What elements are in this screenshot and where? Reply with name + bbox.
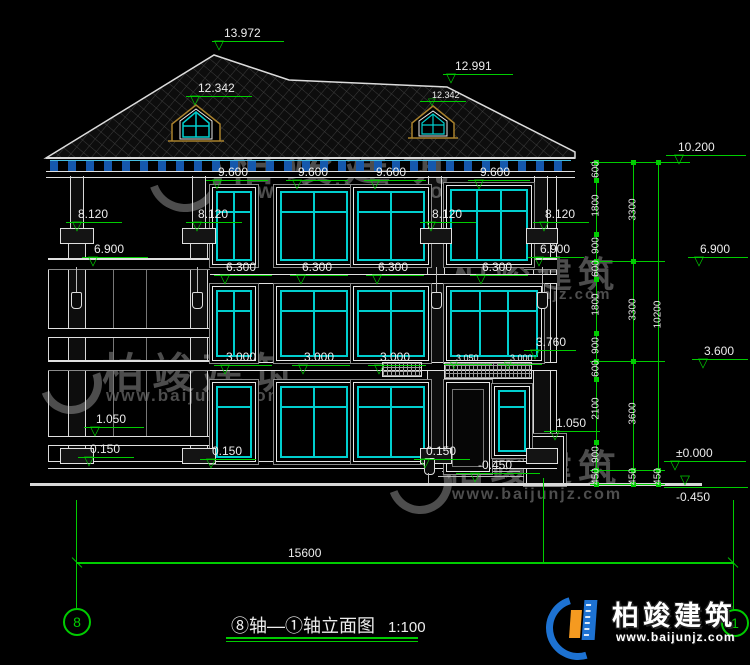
elevation-marker-icon: ▽ <box>192 220 202 231</box>
elevation-marker: -0.450 ▽ <box>456 459 540 474</box>
dimension-label: 450 <box>653 452 664 502</box>
pendant-lamp-icon <box>71 292 82 309</box>
elevation-marker-icon: ▽ <box>446 72 456 83</box>
axis-bubble-left: 8 <box>63 608 91 636</box>
elevation-marker: 0.150 ▽ <box>78 443 134 458</box>
elevation-marker-icon: ▽ <box>450 362 458 370</box>
window <box>353 187 429 265</box>
elevation-label: 12.342 <box>420 90 466 100</box>
window <box>276 382 352 462</box>
elevation-marker-line <box>664 487 748 488</box>
elevation-marker: 6.900 ▽ <box>82 243 148 258</box>
window <box>276 187 352 265</box>
elevation-marker: 9.600 ▽ <box>468 166 530 181</box>
elevation-marker: 3.000 ▽ <box>214 351 272 366</box>
brand-logo: 柏竣建筑 www.baijunjz.com <box>540 586 750 662</box>
dimension-label: 450 <box>628 452 639 502</box>
building-icon <box>569 610 582 638</box>
elevation-marker-icon: ▽ <box>298 363 308 374</box>
elevation-marker: 8.120 ▽ <box>186 208 242 223</box>
elevation-marker: 10.200 ▽ <box>666 141 746 156</box>
elevation-marker-icon: ▽ <box>474 178 484 189</box>
elevation-marker-icon: ▽ <box>190 94 200 105</box>
floor-slab-6900 <box>48 258 210 270</box>
elevation-marker-icon: ▽ <box>420 457 430 468</box>
elevation-marker-icon: ▽ <box>470 471 480 482</box>
dimension-label: 3300 <box>628 185 639 235</box>
dimension-label: 10200 <box>653 290 664 340</box>
elevation-label: -0.450 <box>676 490 710 504</box>
dim-tick <box>631 259 636 264</box>
elevation-marker-icon: ▽ <box>680 472 690 488</box>
elevation-marker: ±0.000 ▽ <box>664 447 746 462</box>
elevation-marker-icon: ▽ <box>694 255 704 266</box>
column <box>190 242 208 448</box>
elevation-marker: 3.000 ▽ <box>292 351 350 366</box>
elevation-marker: 6.900 ▽ <box>688 243 748 258</box>
elevation-marker-icon: ▽ <box>220 273 230 284</box>
elevation-marker-icon: ▽ <box>292 178 302 189</box>
logo-site-url: www.baijunjz.com <box>616 630 736 644</box>
drawing-title-text: ⑧轴—①轴立面图 <box>231 616 375 636</box>
elevation-marker-icon: ▽ <box>426 220 436 231</box>
elevation-marker: 9.600 ▽ <box>286 166 348 181</box>
elevation-marker: 8.120 ▽ <box>66 208 122 223</box>
elevation-marker: 3.000 ▽ <box>368 351 426 366</box>
dimension-label: 15600 <box>288 546 321 560</box>
elevation-label: -0.450 <box>456 459 540 472</box>
building-icon <box>582 600 598 640</box>
elevation-marker-icon: ▽ <box>372 273 382 284</box>
elevation-marker: 9.600 ▽ <box>206 166 268 181</box>
elevation-marker: 0.150 ▽ <box>200 445 256 460</box>
porch-wall-edge <box>146 270 147 436</box>
elevation-marker-icon: ▽ <box>370 178 380 189</box>
elevation-marker-icon: ▽ <box>88 255 98 266</box>
elevation-marker: 6.300 ▽ <box>470 261 528 276</box>
elevation-marker: 12.342 ▽ <box>186 82 252 97</box>
elevation-marker: 12.342 ▽ <box>420 90 466 102</box>
pendant-lamp-icon <box>537 292 548 309</box>
dim-tick <box>631 160 636 165</box>
floor-slab-3600 <box>48 360 210 371</box>
elevation-marker-icon: ▽ <box>84 455 94 466</box>
elevation-marker: 3.760 ▽ <box>524 336 576 351</box>
elevation-marker: 6.900 ▽ <box>528 243 584 258</box>
elevation-marker-icon: ▽ <box>539 220 549 231</box>
drawing-scale: 1:100 <box>380 619 426 636</box>
elevation-marker-icon: ▽ <box>220 363 230 374</box>
elevation-marker: 12.991 ▽ <box>443 60 513 75</box>
elevation-marker-icon: ▽ <box>374 363 384 374</box>
pendant-lamp-icon <box>192 292 203 309</box>
dim-tick <box>631 359 636 364</box>
elevation-marker: 1.050 ▽ <box>544 417 600 432</box>
elevation-marker-icon: ▽ <box>550 429 560 440</box>
eave-fascia <box>46 157 575 159</box>
pendant-lamp-icon <box>431 292 442 309</box>
elevation-marker: 1.050 ▽ <box>84 413 144 428</box>
elevation-marker: 3.050 ▽ <box>444 353 492 365</box>
elevation-marker-icon: ▽ <box>504 362 512 370</box>
lamp-wire <box>542 267 543 292</box>
elevation-marker: 6.300 ▽ <box>366 261 424 276</box>
elevation-marker-icon: ▽ <box>670 459 680 470</box>
elevation-marker-icon: ▽ <box>72 220 82 231</box>
elevation-marker: 0.150 ▽ <box>414 445 470 460</box>
lamp-wire <box>197 267 198 292</box>
window <box>494 386 530 456</box>
elevation-marker: 8.120 ▽ <box>420 208 476 223</box>
elevation-marker: 9.600 ▽ <box>364 166 426 181</box>
elevation-marker: 6.300 ▽ <box>214 261 272 276</box>
elevation-marker-icon: ▽ <box>530 348 540 359</box>
title-underline <box>226 641 418 642</box>
dim-tick <box>656 160 661 165</box>
elevation-marker-icon: ▽ <box>90 425 100 436</box>
lamp-wire <box>76 267 77 292</box>
elevation-marker-icon: ▽ <box>214 39 224 50</box>
elevation-marker: 6.300 ▽ <box>290 261 348 276</box>
logo-brand-name: 柏竣建筑 <box>612 594 736 633</box>
porch-railing-mid <box>48 328 210 338</box>
column-capital <box>420 228 452 244</box>
elevation-marker-icon: ▽ <box>698 357 708 368</box>
elevation-marker-icon: ▽ <box>674 153 684 164</box>
dim-extension-line <box>76 500 77 608</box>
elevation-marker-icon: ▽ <box>476 273 486 284</box>
dimension-label: 3600 <box>628 389 639 439</box>
elevation-marker-icon: ▽ <box>206 457 216 468</box>
elevation-drawing: 柏竣建筑 www.baijunjz.com 柏竣建筑 www.baijunjz.… <box>0 0 750 665</box>
dimension-label: 3300 <box>628 285 639 335</box>
elevation-marker: 8.120 ▽ <box>533 208 589 223</box>
window <box>212 187 256 265</box>
elevation-marker-icon: ▽ <box>534 255 544 266</box>
drawing-title: ⑧轴—①轴立面图 1:100 <box>231 612 426 638</box>
elevation-marker-icon: ▽ <box>428 99 436 107</box>
elevation-marker: 13.972 ▽ <box>212 27 284 42</box>
elevation-marker: 3.600 ▽ <box>692 345 748 360</box>
lamp-wire <box>436 267 437 292</box>
elevation-marker-icon: ▽ <box>296 273 306 284</box>
dimension-label: 450 <box>591 452 602 502</box>
entry-step <box>438 476 524 477</box>
lamp-post <box>428 473 429 483</box>
dimension-line <box>77 562 734 564</box>
window <box>446 185 532 265</box>
dim-extension-line <box>543 478 544 564</box>
elevation-marker-icon: ▽ <box>212 178 222 189</box>
